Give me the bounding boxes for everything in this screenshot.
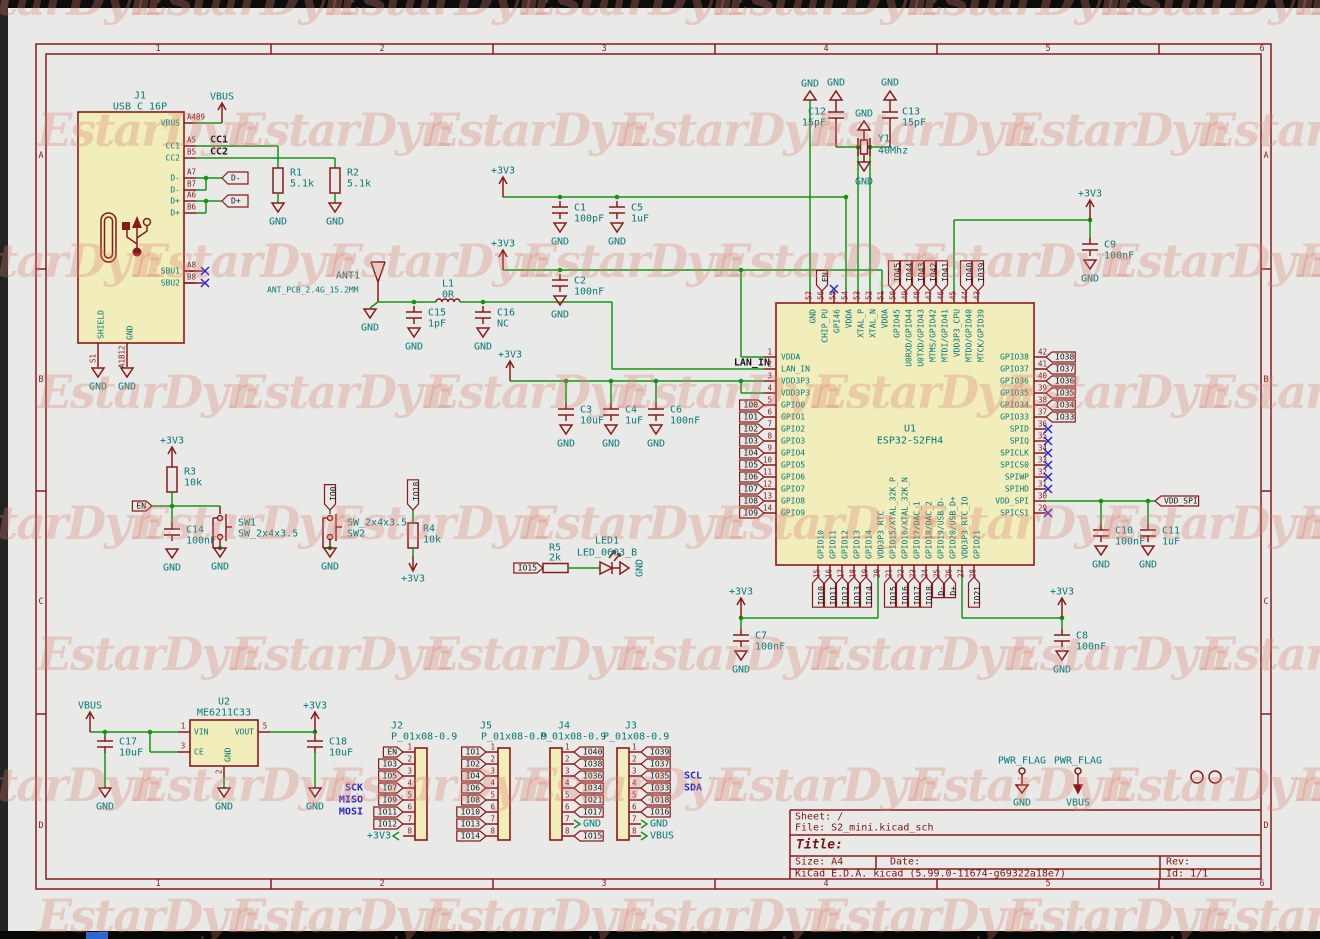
pin-name: D- [170,186,180,195]
global-label[interactable]: IO4 [740,448,764,458]
global-label[interactable]: IO5 [379,771,403,781]
gnd-label: GND [1081,274,1099,285]
res-value: 10k [184,478,202,489]
frame-row: B [38,375,43,385]
cap-value: 100nF [1076,642,1106,653]
pin-number: 3 [407,767,412,776]
global-label-text: IO2 [466,760,481,769]
power-symbol[interactable]: +3V3 [160,436,184,468]
cap-ref: C15 [428,308,446,319]
gnd-label: GND [89,382,107,393]
global-label[interactable]: IO14 [457,831,486,841]
global-label-text: IO8 [744,497,759,506]
pin-number: 16 [825,568,834,578]
pin-name: GPIO17/DAC_1 [913,501,922,559]
connector-ref: J2 [391,721,403,732]
global-label[interactable]: IO18 [408,480,422,510]
pin-number: 7 [565,815,570,824]
cap-ref: C14 [186,525,204,536]
pin-number: 27 [957,569,966,578]
pin-name: CHIP_PU [821,309,830,343]
component-r3[interactable]: R310k [167,467,202,507]
pin-number: 4 [767,384,772,393]
cap-ref: C6 [670,405,682,416]
global-label[interactable]: IO5 [740,460,764,470]
wiring-usb: CC1CC2 [184,123,335,287]
power-label: +3V3 [401,574,425,585]
pin-number: 53 [853,291,862,300]
global-label[interactable]: IO9 [379,795,403,805]
global-label[interactable]: IO11 [374,807,403,817]
label: SW_2x4x3.5 [238,529,298,540]
global-label[interactable]: IO36 [574,771,603,781]
pin-name: XTAL_P [857,309,866,338]
pin-name: GPIO7 [781,485,805,494]
pin-number: 5 [632,791,637,800]
pin-name: GPI46 [833,309,842,333]
gnd-symbol[interactable]: GND [215,788,233,813]
pin-number: 6 [767,408,772,417]
power-symbol[interactable]: +3V3 [729,587,753,619]
global-label[interactable]: IO41 [937,261,951,291]
component-r4[interactable]: R410k [408,510,441,556]
pin-number: 25 [933,569,942,578]
global-label[interactable]: EN [817,270,831,291]
pin-number: 43 [973,291,982,300]
pin-number: 7 [490,815,495,824]
global-label[interactable]: IO0 [740,400,764,410]
component-l1[interactable]: L10R [442,279,455,301]
label: C12 [808,107,826,118]
power-symbol[interactable]: +3V3 [303,701,327,733]
global-label[interactable]: IO13 [457,819,486,829]
cap-ref: C9 [1104,240,1116,251]
global-label-text: IO8 [466,796,481,805]
global-label[interactable]: IO2 [462,759,486,769]
connector-body [415,748,427,840]
pwr-flag-gnd[interactable]: PWR_FLAGGND [998,756,1046,809]
pin-name: VDD3P3_CPU [953,309,962,357]
component-j5[interactable]: J5P_01x08-0.912345678 [480,721,547,841]
global-label[interactable]: IO33 [1046,412,1075,422]
label: SW1 [238,518,256,529]
global-label[interactable]: IO14 [861,577,875,607]
global-label-text: IO39 [650,748,669,757]
power-symbol[interactable]: VBUS [210,92,234,124]
ant-ref: ANT1 [336,271,360,282]
global-label[interactable]: IO17 [574,807,603,817]
pin-name: GND [126,325,135,340]
junction [204,176,209,181]
power-symbol[interactable]: VBUS [78,701,102,733]
resistor-body [330,168,340,193]
component-u1[interactable]: U1ESP32-S2FH41VDDA2LAN_IN3VDD3P34VDD3P35… [763,285,1052,578]
global-label-text: IO35 [650,772,669,781]
component-c1[interactable]: C1100pFGND [551,195,604,248]
pin-number: 21 [885,569,894,578]
power-symbol[interactable]: +3V3 [498,350,522,382]
junction [558,268,563,273]
label: D+ [231,197,241,206]
pwr-flag-label: PWR_FLAG [998,756,1046,767]
pin-name: GPIO19/USB_D- [937,496,946,559]
note-sck: SCK [345,783,363,794]
pin-name: VDD3P3_RTC [877,511,886,559]
gnd-symbol[interactable]: GND [89,368,107,393]
title-label: Title: [796,838,843,853]
cap-ref: C10 [1115,526,1133,537]
global-label-text: IO9 [383,796,398,805]
frame-col: 6 [1259,44,1264,54]
pin-name: VDD3P3 [781,377,810,386]
power-symbol[interactable]: +3V3 [401,556,425,585]
gnd-label: GND [881,78,899,89]
global-label[interactable]: IO6 [740,472,764,482]
global-label[interactable]: EN [383,747,403,757]
global-label[interactable]: IO3 [740,436,764,446]
cap-value: 100nF [670,416,700,427]
power-label: +3V3 [160,436,184,447]
vbus-label: VBUS [1066,798,1090,809]
pin-name: GPIO3 [781,437,805,446]
global-label[interactable]: IO35 [1046,388,1075,398]
pin-number: 4 [407,779,412,788]
global-label[interactable]: IO9 [740,508,764,518]
component-c4[interactable]: C41uFGND [602,379,643,450]
cap-ref: C5 [631,203,643,214]
gnd-label: GND [1092,560,1110,571]
gnd-label: GND [602,439,620,450]
pin-name: CE [194,748,204,757]
connector-body [550,748,562,840]
pin-number: 14 [763,504,773,513]
pin-number: S1 [89,354,98,363]
global-label[interactable]: IO1 [740,412,764,422]
hier-label-dplus[interactable]: D+ [222,195,248,207]
frame-col: 3 [601,879,606,889]
global-label[interactable]: IO4 [462,771,486,781]
crystal-body [861,140,868,154]
pin-name: SPICLK [1000,449,1029,458]
component-c2[interactable]: C2100nFGND [551,268,604,321]
pin-name: GPIO20/USB_D+ [949,496,958,559]
pin-number: 5 [407,791,412,800]
global-label[interactable]: IO8 [740,496,764,506]
global-label[interactable]: IO34 [1046,400,1075,410]
global-label[interactable]: VDD_SPI [1155,496,1199,506]
power-gnd-top[interactable]: GND [801,79,819,101]
pin-number: 4 [632,779,637,788]
pin-number: 52 [865,291,874,300]
frame-row: D [38,821,43,831]
global-label[interactable]: IO39 [973,261,987,291]
gnd-label: GND [551,310,569,321]
global-label-text: IO39 [977,263,986,282]
junction [558,195,563,200]
pin-name: VDD3P3_RTC_IO [961,496,970,559]
component-y1[interactable]: Y140MhzGNDGND [855,109,908,188]
pin-number: 47 [925,291,934,300]
global-label[interactable]: IO35 [641,771,670,781]
pin-name: CC2 [166,154,181,163]
component-r1[interactable]: R15.1kGND [269,168,314,228]
pin-number: 1 [767,348,772,357]
pin-number: 45 [949,291,958,300]
component-c5[interactable]: C51uFGND [608,195,649,248]
component-c8[interactable]: C8100nFGND [1053,618,1106,676]
cap-value: 10uF [119,748,143,759]
global-label-text: IO9 [744,509,759,518]
component-c10[interactable]: C10100nFGND [1092,499,1145,571]
file-name: File: S2_mini.kicad_sch [795,823,933,834]
pwr-flag-label: PWR_FLAG [1054,756,1102,767]
component-ant1[interactable]: ANT1ANT_PCB_2.4G_15.2MMGND [267,262,385,334]
wire [370,302,378,308]
label: 10k [423,535,441,546]
component-c7[interactable]: C7100nFGND [732,618,785,676]
power-symbol[interactable]: +3V3 [1050,587,1074,619]
schematic-drawing: 112233445566AABBCCDDSheet: /File: S2_min… [0,0,1320,939]
pin-number: 7 [407,815,412,824]
component-c9[interactable]: C9100nFGND [1081,220,1134,285]
gnd-label: GND [474,342,492,353]
power-pin-label: VBUS [650,831,674,842]
cap-ref: C8 [1076,631,1088,642]
global-label[interactable]: IO38 [574,759,603,769]
power-symbol[interactable]: +3V3 [1078,189,1102,221]
pin-number: 22 [897,569,906,578]
global-label[interactable]: IO7 [379,783,403,793]
gnd-label: GND [163,563,181,574]
pin-number: 6 [565,803,570,812]
pin-name: SBU1 [161,267,180,276]
pin-number: 2 [632,755,637,764]
pin-name: VDDA [845,309,854,328]
pin-name: GPIO13 [853,530,862,559]
global-label-text: EN [387,748,397,757]
gnd-label: GND [551,237,569,248]
label: 2k [549,553,561,564]
component-c11[interactable]: C111uFGND [1139,499,1180,571]
pin-number: A8 [187,261,197,270]
global-label[interactable]: IO8 [462,795,486,805]
cap-ref: C4 [625,405,637,416]
power-label: +3V3 [491,166,515,177]
pin-number: 2 [490,755,495,764]
pin-number: A4B9 [187,113,205,122]
label: LED1 [595,536,619,547]
pin-number: 42 [1038,348,1047,357]
global-label[interactable]: IO1 [462,747,486,757]
date-label: Date: [890,857,920,868]
frame-row: C [38,597,43,607]
connector-ref: J4 [558,721,570,732]
hier-label-dminus[interactable]: D- [222,172,248,184]
cap-ref: C7 [755,631,767,642]
global-label[interactable]: IO36 [1046,376,1075,386]
global-label[interactable]: IO21 [574,795,603,805]
gnd-label: GND [118,382,136,393]
pin-name: VBUS [161,119,180,128]
pin-number: 12 [763,480,772,489]
connector-value: P_01x08-0.9 [540,732,606,743]
pin-name: LAN_IN [781,365,810,374]
global-label[interactable]: IO40 [574,747,603,757]
pin-name: GPIO21 [973,530,982,559]
kicad-schematic-window: 112233445566AABBCCDDSheet: /File: S2_min… [0,0,1320,939]
pin-name: U0TXD/GPIO43 [917,309,926,367]
gnd-symbol[interactable]: GND [118,368,136,393]
pin-name: GPIO9 [781,509,805,518]
pin-name: GND [809,309,818,324]
pin-number: 51 [877,291,886,300]
marker-circle [1191,771,1203,783]
global-label-text: IO12 [378,820,397,829]
global-label[interactable]: IO18 [641,795,670,805]
global-label[interactable]: IO12 [374,819,403,829]
component-sw2[interactable]: GNDSW_2x4x3.5SW2 [321,510,407,573]
component-c6[interactable]: C6100nFGND [647,379,700,450]
pin-name: D- [170,174,180,183]
note-scl: SCL [684,771,702,782]
pin-number: 4 [565,779,570,788]
power-symbol[interactable]: +3V3 [491,166,515,198]
pwr-flag-vbus[interactable]: PWR_FLAGVBUS [1054,756,1102,809]
frame-col: 4 [823,879,828,889]
global-label-text: IO40 [583,748,602,757]
global-label[interactable]: IO37 [641,759,670,769]
frame-col: 1 [155,44,160,54]
size-label: Size: A4 [795,857,843,868]
global-label[interactable]: IO21 [969,577,983,607]
component-c17[interactable]: C1710uFGND [96,732,143,813]
u2-value: ME6211C33 [197,708,251,719]
component-c15[interactable]: C151pFGND [405,300,446,353]
cap-value: 1pF [428,319,446,330]
global-label-text: D+ [949,586,958,596]
component-sw1[interactable]: GNDSW1SW_2x4x3.5 [211,506,298,573]
global-label[interactable]: IO15 [514,563,543,573]
global-label[interactable]: IO7 [740,484,764,494]
res-ref: R3 [184,467,196,478]
pin-name: U0RXD/GPIO44 [905,309,914,367]
pin-name: GPIO14 [865,530,874,559]
gnd-label: GND [269,217,287,228]
pin-number: 6 [407,803,412,812]
power-symbol[interactable]: +3V3 [491,239,515,271]
pin-number: 1 [565,743,570,752]
note-mosi: MOSI [339,807,363,818]
global-label[interactable]: IO6 [462,783,486,793]
pin-number: 15 [813,569,822,578]
global-label[interactable]: IO3 [379,759,403,769]
component-u2[interactable]: U2ME6211C331VIN3CE5VOUT2GND [178,697,270,779]
global-label-text: VDD_SPI [1164,497,1198,506]
pin-number: 3 [767,372,772,381]
gnd-label: GND [1013,798,1031,809]
pin-name: GPIO36 [1000,377,1029,386]
global-label[interactable]: EN [132,501,152,511]
pin-number: 41 [1038,360,1047,369]
pin-name: GPIO15/XTAL_32K_P [889,477,898,559]
power-label: VBUS [210,92,234,103]
u2-ref: U2 [218,697,230,708]
cap-value: 100nF [186,536,216,547]
connector-body [617,748,629,840]
pin-number: 3 [632,767,637,776]
pin-number: 54 [841,290,850,300]
global-label[interactable]: IO2 [740,424,764,434]
pin-number: 8 [767,432,772,441]
component-c3[interactable]: C310uFGND [557,379,604,450]
pin-name: GPIO16/XTAL_32K_N [901,477,910,559]
pin-number: 20 [873,568,882,578]
pin-number: 5 [263,722,268,731]
pin-name: SBU2 [161,279,180,288]
pin-name: VOUT [235,728,254,737]
pin-name: GPIO8 [781,497,805,506]
global-label[interactable]: IO33 [641,783,670,793]
pin-number: 48 [913,290,922,300]
global-label-text: IO4 [744,449,759,458]
global-label[interactable]: IO39 [641,747,670,757]
label: 40Mhz [878,146,908,157]
global-label[interactable]: IO10 [457,807,486,817]
cap-value: 100nF [1104,251,1134,262]
power-label: +3V3 [1050,587,1074,598]
pin-name: VDD3P3 [781,389,810,398]
pin-number: 4 [490,779,495,788]
label: 15pF [802,118,826,129]
component-led1[interactable]: LED1LED_0603_BGND [577,536,646,578]
global-label[interactable]: IO15 [574,831,603,841]
cap-ref: C3 [580,405,592,416]
frame-row: A [1263,151,1268,161]
pin-name: GND [224,747,233,762]
pin-name: GPIO2 [781,425,805,434]
pin-number: 8 [565,827,570,836]
global-label[interactable]: IO0 [325,485,339,510]
gnd-label: GND [306,802,324,813]
pin-number: 17 [837,569,846,578]
gnd-label: GND [557,439,575,450]
label: Y1 [878,134,890,145]
junction [204,199,209,204]
gnd-label: GND [326,217,344,228]
global-label-text: IO16 [650,808,669,817]
gnd-label: GND [215,802,233,813]
component-r2[interactable]: R25.1kGND [326,168,371,228]
gnd-label: GND [855,177,873,188]
component-j1[interactable]: J1USB_C_16PA4B9VBUSA5CC1B5CC2A7D-B7D-A6D… [78,91,205,369]
global-label[interactable]: D+ [945,577,959,598]
global-label[interactable]: IO38 [1046,352,1075,362]
global-label[interactable]: IO34 [574,783,603,793]
power-label: VBUS [78,701,102,712]
global-label[interactable]: IO37 [1046,364,1075,374]
component-c14[interactable]: C14100nFGND [163,506,216,574]
pin-number: 1 [407,743,412,752]
pin-number: A1B12 [118,345,127,368]
junction [412,300,417,305]
connector-body [498,748,510,840]
global-label[interactable]: IO16 [641,807,670,817]
pin-number: A6 [187,191,197,200]
pin-name: MTMS/GPIO42 [929,309,938,362]
component-c16[interactable]: C16NCGND [474,300,515,353]
global-label-text: IO37 [650,760,669,769]
pin-number: 11 [763,468,772,477]
